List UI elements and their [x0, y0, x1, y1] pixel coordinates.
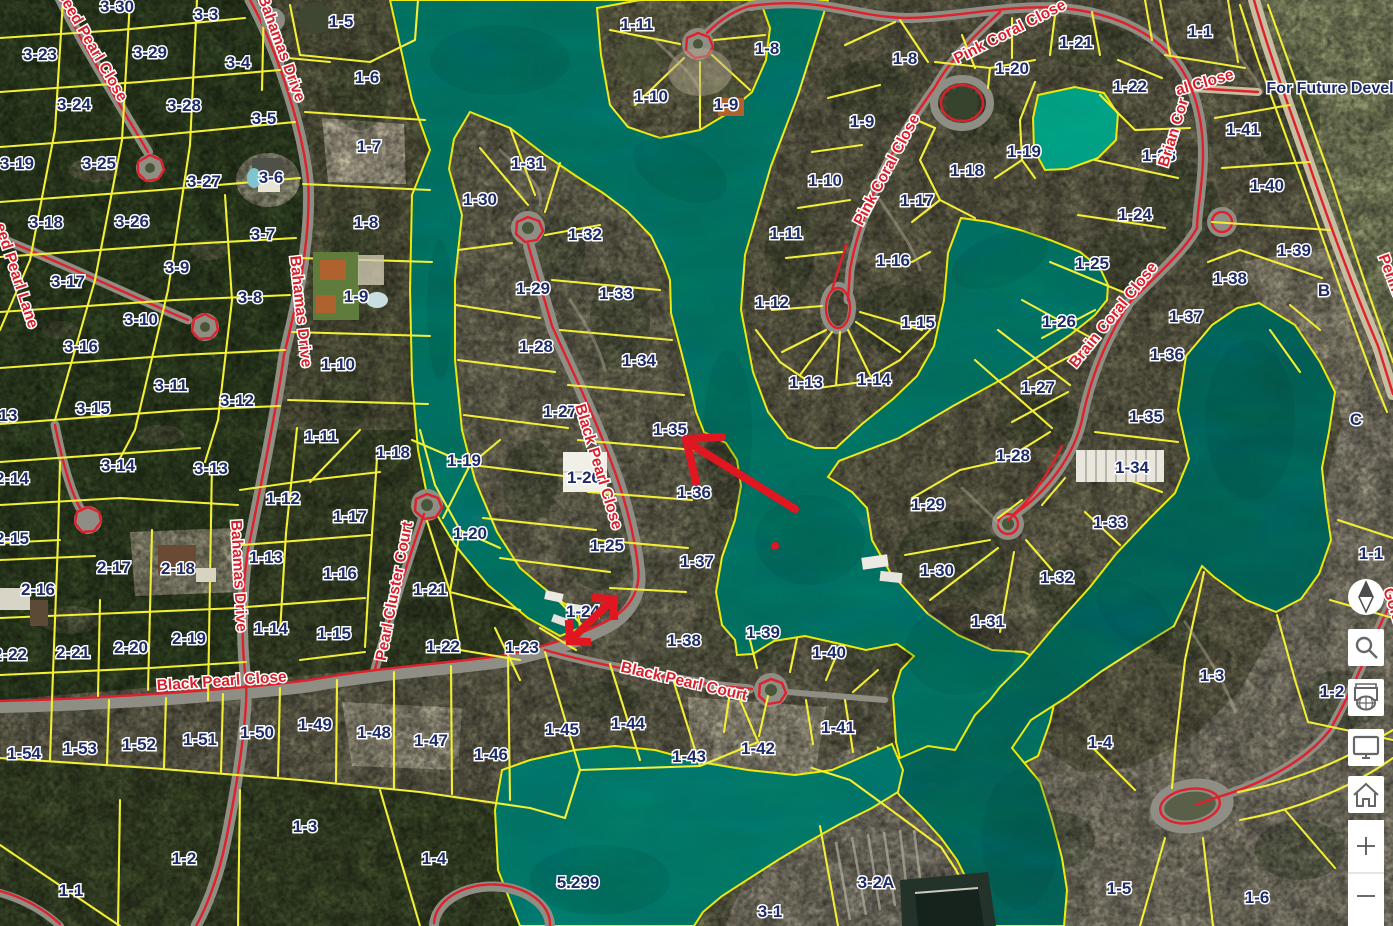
svg-text:1-12: 1-12 [266, 489, 300, 508]
svg-text:1-1: 1-1 [1188, 22, 1213, 41]
svg-text:3-25: 3-25 [82, 154, 116, 173]
svg-text:1-46: 1-46 [474, 745, 508, 764]
svg-text:3-18: 3-18 [29, 213, 63, 232]
svg-text:3-26: 3-26 [115, 212, 149, 231]
svg-text:1-15: 1-15 [901, 313, 935, 332]
svg-text:1-28: 1-28 [519, 337, 553, 356]
svg-text:1-25: 1-25 [1075, 254, 1109, 273]
svg-text:3-14: 3-14 [101, 456, 136, 475]
svg-text:2-18: 2-18 [161, 559, 195, 578]
svg-text:1-48: 1-48 [357, 723, 391, 742]
svg-text:2-20: 2-20 [114, 638, 148, 657]
svg-text:1-9: 1-9 [850, 112, 875, 131]
svg-text:1-5: 1-5 [329, 12, 354, 31]
svg-text:1-12: 1-12 [755, 293, 789, 312]
svg-text:1-8: 1-8 [893, 49, 918, 68]
svg-text:3-29: 3-29 [133, 43, 167, 62]
svg-text:3-24: 3-24 [57, 95, 92, 114]
svg-text:2-17: 2-17 [97, 558, 131, 577]
svg-text:3-8: 3-8 [238, 288, 263, 307]
svg-text:1-18: 1-18 [376, 443, 410, 462]
svg-text:1-22: 1-22 [426, 637, 460, 656]
svg-text:1-21: 1-21 [413, 580, 447, 599]
svg-text:1-10: 1-10 [634, 87, 668, 106]
svg-text:1-14: 1-14 [254, 619, 289, 638]
svg-text:3-15: 3-15 [76, 399, 110, 418]
svg-text:1-5: 1-5 [1107, 879, 1132, 898]
svg-text:1-23: 1-23 [505, 638, 539, 657]
svg-text:1-37: 1-37 [680, 552, 714, 571]
svg-text:3-19: 3-19 [0, 154, 34, 173]
svg-text:3-4: 3-4 [226, 53, 251, 72]
svg-text:1-38: 1-38 [667, 631, 701, 650]
svg-text:1-40: 1-40 [812, 643, 846, 662]
svg-text:1-38: 1-38 [1213, 269, 1247, 288]
svg-text:1-11: 1-11 [620, 15, 653, 34]
svg-text:1-2: 1-2 [1320, 682, 1345, 701]
svg-text:1-43: 1-43 [672, 747, 706, 766]
svg-text:1-30: 1-30 [920, 561, 954, 580]
svg-text:3-9: 3-9 [165, 258, 190, 277]
svg-text:1-29: 1-29 [911, 495, 945, 514]
svg-text:1-36: 1-36 [677, 483, 711, 502]
svg-text:1-45: 1-45 [545, 720, 579, 739]
svg-text:1-25: 1-25 [590, 536, 624, 555]
svg-text:1-28: 1-28 [996, 446, 1030, 465]
svg-text:3-30: 3-30 [100, 0, 134, 16]
svg-text:1-2: 1-2 [172, 849, 197, 868]
svg-text:1-15: 1-15 [317, 624, 351, 643]
svg-text:2-19: 2-19 [172, 629, 206, 648]
svg-text:1-1: 1-1 [59, 881, 84, 900]
svg-text:1-41: 1-41 [1226, 120, 1260, 139]
svg-text:1-54: 1-54 [7, 744, 42, 763]
svg-text:1-10: 1-10 [321, 355, 355, 374]
svg-text:1-35: 1-35 [653, 420, 687, 439]
svg-text:1-32: 1-32 [1040, 568, 1074, 587]
svg-text:1-26: 1-26 [1042, 312, 1076, 331]
svg-text:1-11: 1-11 [769, 224, 802, 243]
svg-text:1-51: 1-51 [183, 730, 217, 749]
svg-text:1-10: 1-10 [808, 171, 842, 190]
svg-text:1-31: 1-31 [971, 612, 1005, 631]
svg-text:1-39: 1-39 [746, 623, 780, 642]
svg-text:1-20: 1-20 [995, 59, 1029, 78]
svg-text:1-24: 1-24 [1118, 205, 1153, 224]
svg-text:3-5: 3-5 [252, 109, 277, 128]
svg-text:1-49: 1-49 [298, 715, 332, 734]
svg-text:1-27: 1-27 [1021, 378, 1055, 397]
svg-text:1-29: 1-29 [516, 279, 550, 298]
svg-text:2-16: 2-16 [21, 580, 55, 599]
svg-text:For Future Devel: For Future Devel [1266, 80, 1393, 97]
svg-text:1-50: 1-50 [240, 723, 274, 742]
svg-text:1-16: 1-16 [876, 251, 910, 270]
svg-text:3-1: 3-1 [758, 902, 783, 921]
svg-text:1-11: 1-11 [304, 427, 337, 446]
svg-text:1-53: 1-53 [63, 739, 97, 758]
svg-text:3-2A: 3-2A [858, 873, 895, 892]
svg-text:1-8: 1-8 [354, 213, 379, 232]
svg-text:2-14: 2-14 [0, 469, 30, 488]
svg-text:3-27: 3-27 [187, 172, 221, 191]
svg-text:1-19: 1-19 [1007, 142, 1041, 161]
svg-text:1-6: 1-6 [355, 68, 380, 87]
svg-text:1-14: 1-14 [857, 370, 892, 389]
svg-text:1-21: 1-21 [1059, 33, 1093, 52]
svg-text:1-3: 1-3 [1200, 666, 1225, 685]
svg-text:1-4: 1-4 [1088, 733, 1113, 752]
svg-text:5.299: 5.299 [557, 873, 600, 892]
svg-text:1-9: 1-9 [344, 287, 369, 306]
svg-text:3-13: 3-13 [194, 459, 228, 478]
svg-text:1-16: 1-16 [323, 564, 357, 583]
svg-text:1-13: 1-13 [249, 548, 283, 567]
svg-text:1-36: 1-36 [1150, 345, 1184, 364]
svg-text:1-30: 1-30 [463, 190, 497, 209]
svg-text:2-15: 2-15 [0, 529, 29, 548]
svg-text:1-3: 1-3 [293, 817, 318, 836]
svg-text:3-16: 3-16 [64, 337, 98, 356]
svg-text:1-17: 1-17 [900, 191, 934, 210]
svg-text:2-21: 2-21 [56, 643, 90, 662]
svg-text:1-9: 1-9 [714, 95, 739, 114]
svg-text:3-6: 3-6 [259, 168, 284, 187]
svg-text:3-10: 3-10 [124, 310, 158, 329]
svg-text:3-3: 3-3 [194, 5, 219, 24]
svg-text:1-33: 1-33 [599, 284, 633, 303]
svg-text:1-31: 1-31 [511, 154, 545, 173]
svg-text:1-32: 1-32 [568, 225, 602, 244]
svg-text:1-40: 1-40 [1250, 176, 1284, 195]
svg-text:1-47: 1-47 [414, 731, 448, 750]
svg-text:13: 13 [0, 406, 17, 425]
svg-text:1-19: 1-19 [447, 451, 481, 470]
svg-text:1-4: 1-4 [422, 849, 447, 868]
svg-text:1-13: 1-13 [789, 373, 823, 392]
svg-text:3-12: 3-12 [220, 391, 254, 410]
svg-text:1-8: 1-8 [755, 39, 780, 58]
svg-text:1-7: 1-7 [357, 137, 382, 156]
svg-text:3-28: 3-28 [167, 96, 201, 115]
svg-text:1-34: 1-34 [1115, 458, 1150, 477]
svg-text:1-33: 1-33 [1093, 513, 1127, 532]
svg-text:B: B [1318, 281, 1330, 300]
svg-text:1-52: 1-52 [122, 735, 156, 754]
svg-text:1-44: 1-44 [611, 714, 646, 733]
svg-text:3-11: 3-11 [154, 376, 187, 395]
svg-text:C: C [1350, 410, 1362, 429]
svg-text:1-35: 1-35 [1129, 407, 1163, 426]
svg-text:3-7: 3-7 [251, 225, 276, 244]
svg-text:1-39: 1-39 [1277, 241, 1311, 260]
svg-text:1-18: 1-18 [950, 161, 984, 180]
svg-text:1-1: 1-1 [1359, 544, 1384, 563]
svg-text:1-41: 1-41 [821, 718, 855, 737]
svg-text:3-23: 3-23 [23, 45, 57, 64]
svg-text:1-37: 1-37 [1169, 307, 1203, 326]
svg-text:1-22: 1-22 [1113, 77, 1147, 96]
svg-text:1-20: 1-20 [453, 524, 487, 543]
svg-text:1-34: 1-34 [622, 351, 657, 370]
svg-text:3-17: 3-17 [51, 272, 85, 291]
svg-text:1-17: 1-17 [333, 507, 367, 526]
svg-text:1-42: 1-42 [741, 739, 775, 758]
svg-text:2-22: 2-22 [0, 645, 27, 664]
svg-text:1-27: 1-27 [543, 402, 577, 421]
svg-text:1-6: 1-6 [1245, 888, 1270, 907]
